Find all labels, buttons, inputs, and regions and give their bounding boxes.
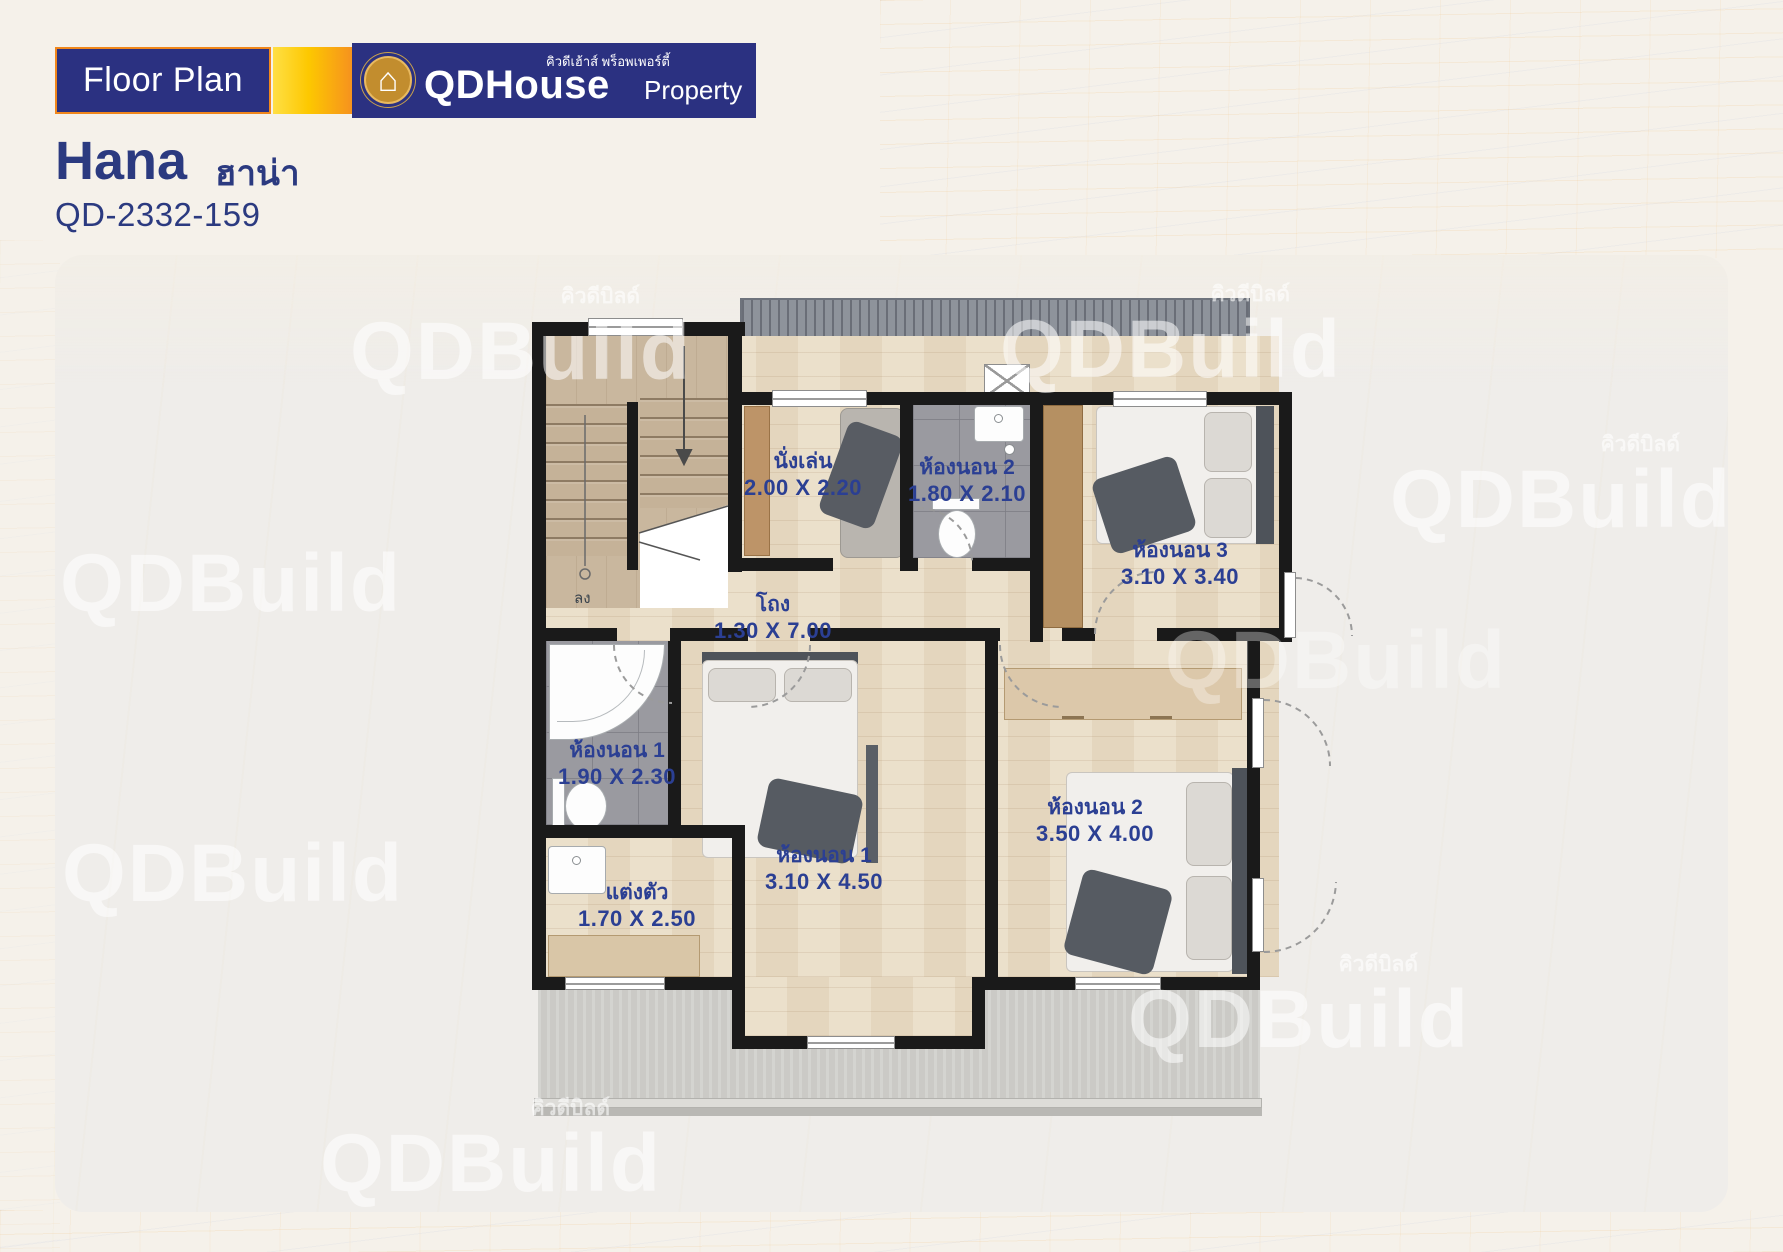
bedroom2-pillow	[1186, 782, 1232, 866]
faucet-icon	[994, 414, 1003, 423]
dressing-window	[565, 977, 665, 990]
bedroom1-pillow	[708, 668, 776, 702]
wall	[985, 641, 998, 990]
wall	[532, 628, 617, 641]
room-label-sitting: นั่งเล่น 2.00 X 2.20	[744, 449, 862, 501]
room-label-bedroom1: ห้องนอน 1 3.10 X 4.50	[765, 843, 883, 895]
house-icon: ⌂	[364, 56, 412, 104]
shower-head-icon	[1004, 444, 1015, 455]
wall	[1030, 392, 1043, 642]
bedroom2-pillow	[1186, 876, 1232, 960]
room-name: ห้องนอน 2	[1036, 795, 1154, 821]
sink	[974, 406, 1024, 442]
stair-window	[588, 318, 683, 336]
room-name: ห้องนอน 2	[908, 455, 1026, 481]
room-label-bedroom3: ห้องนอน 3 3.10 X 3.40	[1121, 538, 1239, 590]
room-name: ห้องนอน 3	[1121, 538, 1239, 564]
room-name: ห้องนอน 1	[558, 738, 676, 764]
bedroom2-window	[1075, 977, 1161, 990]
bedroom1-window	[807, 1036, 895, 1049]
stairs-left-flight	[546, 404, 630, 556]
wall	[1062, 628, 1095, 641]
bedroom3-window	[1113, 391, 1207, 407]
room-size: 1.70 X 2.50	[578, 906, 696, 933]
bedroom2-balcony-door	[1252, 698, 1264, 768]
wall	[532, 322, 546, 990]
room-size: 1.80 X 2.10	[908, 481, 1026, 508]
room-name: โถง	[714, 592, 832, 618]
floor-plan-badge: Floor Plan	[55, 47, 271, 114]
wall	[1157, 628, 1292, 641]
wall	[728, 558, 833, 571]
brand-logo-bar: ⌂ คิวดีเฮ้าส์ พร็อพเพอร์ตี้ QDHouse Prop…	[352, 43, 756, 118]
gradient-divider	[273, 47, 352, 114]
stairs-down-label: ลง	[574, 586, 591, 610]
blueprint-texture-bottom	[0, 1210, 1783, 1252]
dressing-counter	[548, 935, 700, 977]
room-size: 1.30 X 7.00	[714, 618, 832, 645]
bedroom2-balcony-door	[1252, 878, 1264, 952]
room-label-dressing: แต่งตัว 1.70 X 2.50	[578, 880, 696, 932]
blueprint-texture-top-right	[880, 0, 1783, 258]
stair-spine-wall	[627, 402, 638, 570]
balcony-deck-edge	[534, 1098, 1262, 1108]
bedroom3-wardrobe	[1043, 405, 1083, 628]
bedroom3-balcony-door	[1284, 572, 1296, 638]
stairs-right-flight	[640, 398, 728, 508]
brand-sub-name: Property	[644, 75, 742, 106]
wall	[532, 825, 745, 838]
wardrobe-handle	[1150, 716, 1172, 719]
room-label-bath1: ห้องนอน 1 1.90 X 2.30	[558, 738, 676, 790]
toilet-bowl	[938, 510, 976, 558]
bedroom3-headboard	[1256, 406, 1274, 544]
bedroom2-wardrobe	[1004, 668, 1242, 720]
room-name: ห้องนอน 1	[765, 843, 883, 869]
wall	[732, 838, 745, 990]
bedroom3-pillow	[1204, 478, 1252, 538]
sitting-window	[772, 390, 867, 407]
brand-name: QDHouse	[424, 63, 610, 108]
wardrobe-handle	[1062, 716, 1084, 719]
room-name: แต่งตัว	[578, 880, 696, 906]
bedroom1-bay-floor	[745, 977, 972, 1036]
faucet-icon	[572, 856, 581, 865]
room-size: 1.90 X 2.30	[558, 764, 676, 791]
room-label-bath2: ห้องนอน 2 1.80 X 2.10	[908, 455, 1026, 507]
bedroom1-pillow	[784, 668, 852, 702]
room-label-hall: โถง 1.30 X 7.00	[714, 592, 832, 644]
plan-code: QD-2332-159	[55, 196, 260, 234]
wall	[972, 558, 1043, 571]
bedroom3-pillow	[1204, 412, 1252, 472]
room-size: 2.00 X 2.20	[744, 475, 862, 502]
room-name: นั่งเล่น	[744, 449, 862, 475]
wall	[810, 628, 1000, 641]
floor-plan-poster: { "header": { "badge_label": "Floor Plan…	[0, 0, 1783, 1252]
room-size: 3.10 X 4.50	[765, 869, 883, 896]
brand-text-block: คิวดีเฮ้าส์ พร็อพเพอร์ตี้ QDHouse Proper…	[424, 49, 754, 113]
wall	[905, 558, 918, 571]
plan-title: Hana	[55, 130, 187, 192]
wall	[728, 336, 742, 572]
room-label-bedroom2: ห้องนอน 2 3.50 X 4.00	[1036, 795, 1154, 847]
blueprint-texture-left	[0, 240, 60, 1252]
room-size: 3.10 X 3.40	[1121, 564, 1239, 591]
floor-plan-badge-label: Floor Plan	[83, 61, 243, 100]
balcony-deck-shadow	[534, 1108, 1262, 1116]
plan-title-thai: ฮาน่า	[215, 146, 300, 201]
room-size: 3.50 X 4.00	[1036, 821, 1154, 848]
